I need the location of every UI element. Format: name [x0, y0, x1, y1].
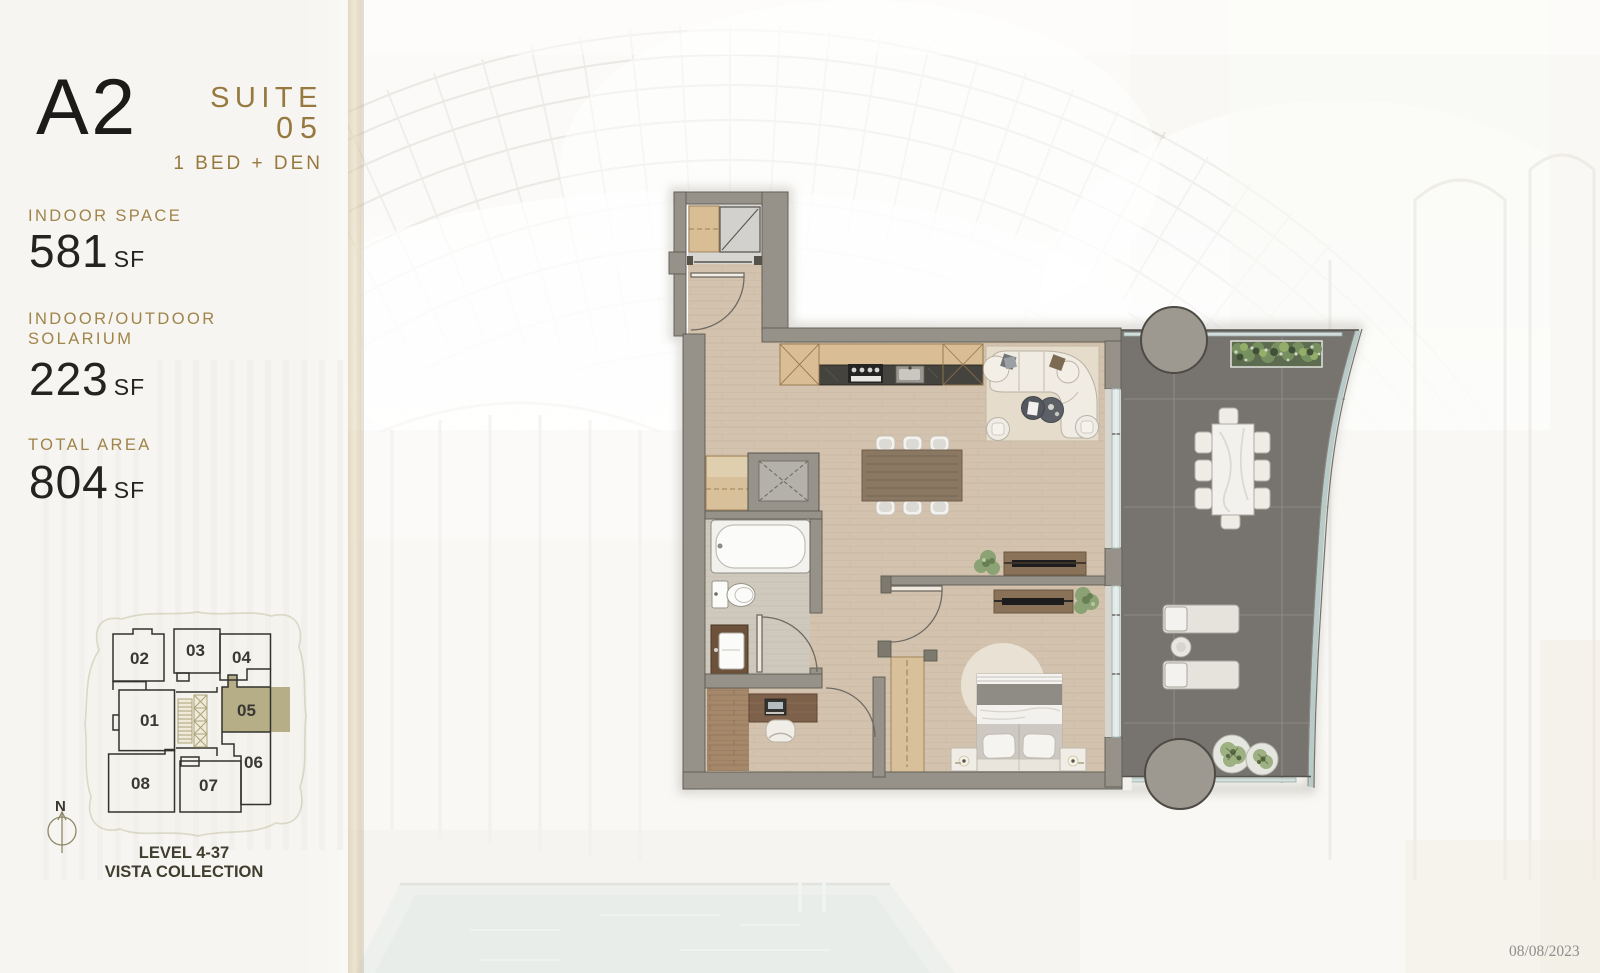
svg-text:06: 06	[244, 753, 263, 772]
svg-text:01: 01	[140, 711, 159, 730]
svg-text:05: 05	[237, 701, 256, 720]
svg-text:03: 03	[186, 641, 205, 660]
svg-text:VISTA COLLECTION: VISTA COLLECTION	[105, 863, 264, 881]
svg-text:N: N	[55, 798, 66, 815]
svg-text:07: 07	[199, 776, 218, 795]
svg-text:08: 08	[131, 774, 150, 793]
svg-text:04: 04	[232, 648, 251, 667]
svg-text:LEVEL 4-37: LEVEL 4-37	[139, 844, 229, 862]
svg-text:02: 02	[130, 649, 149, 668]
